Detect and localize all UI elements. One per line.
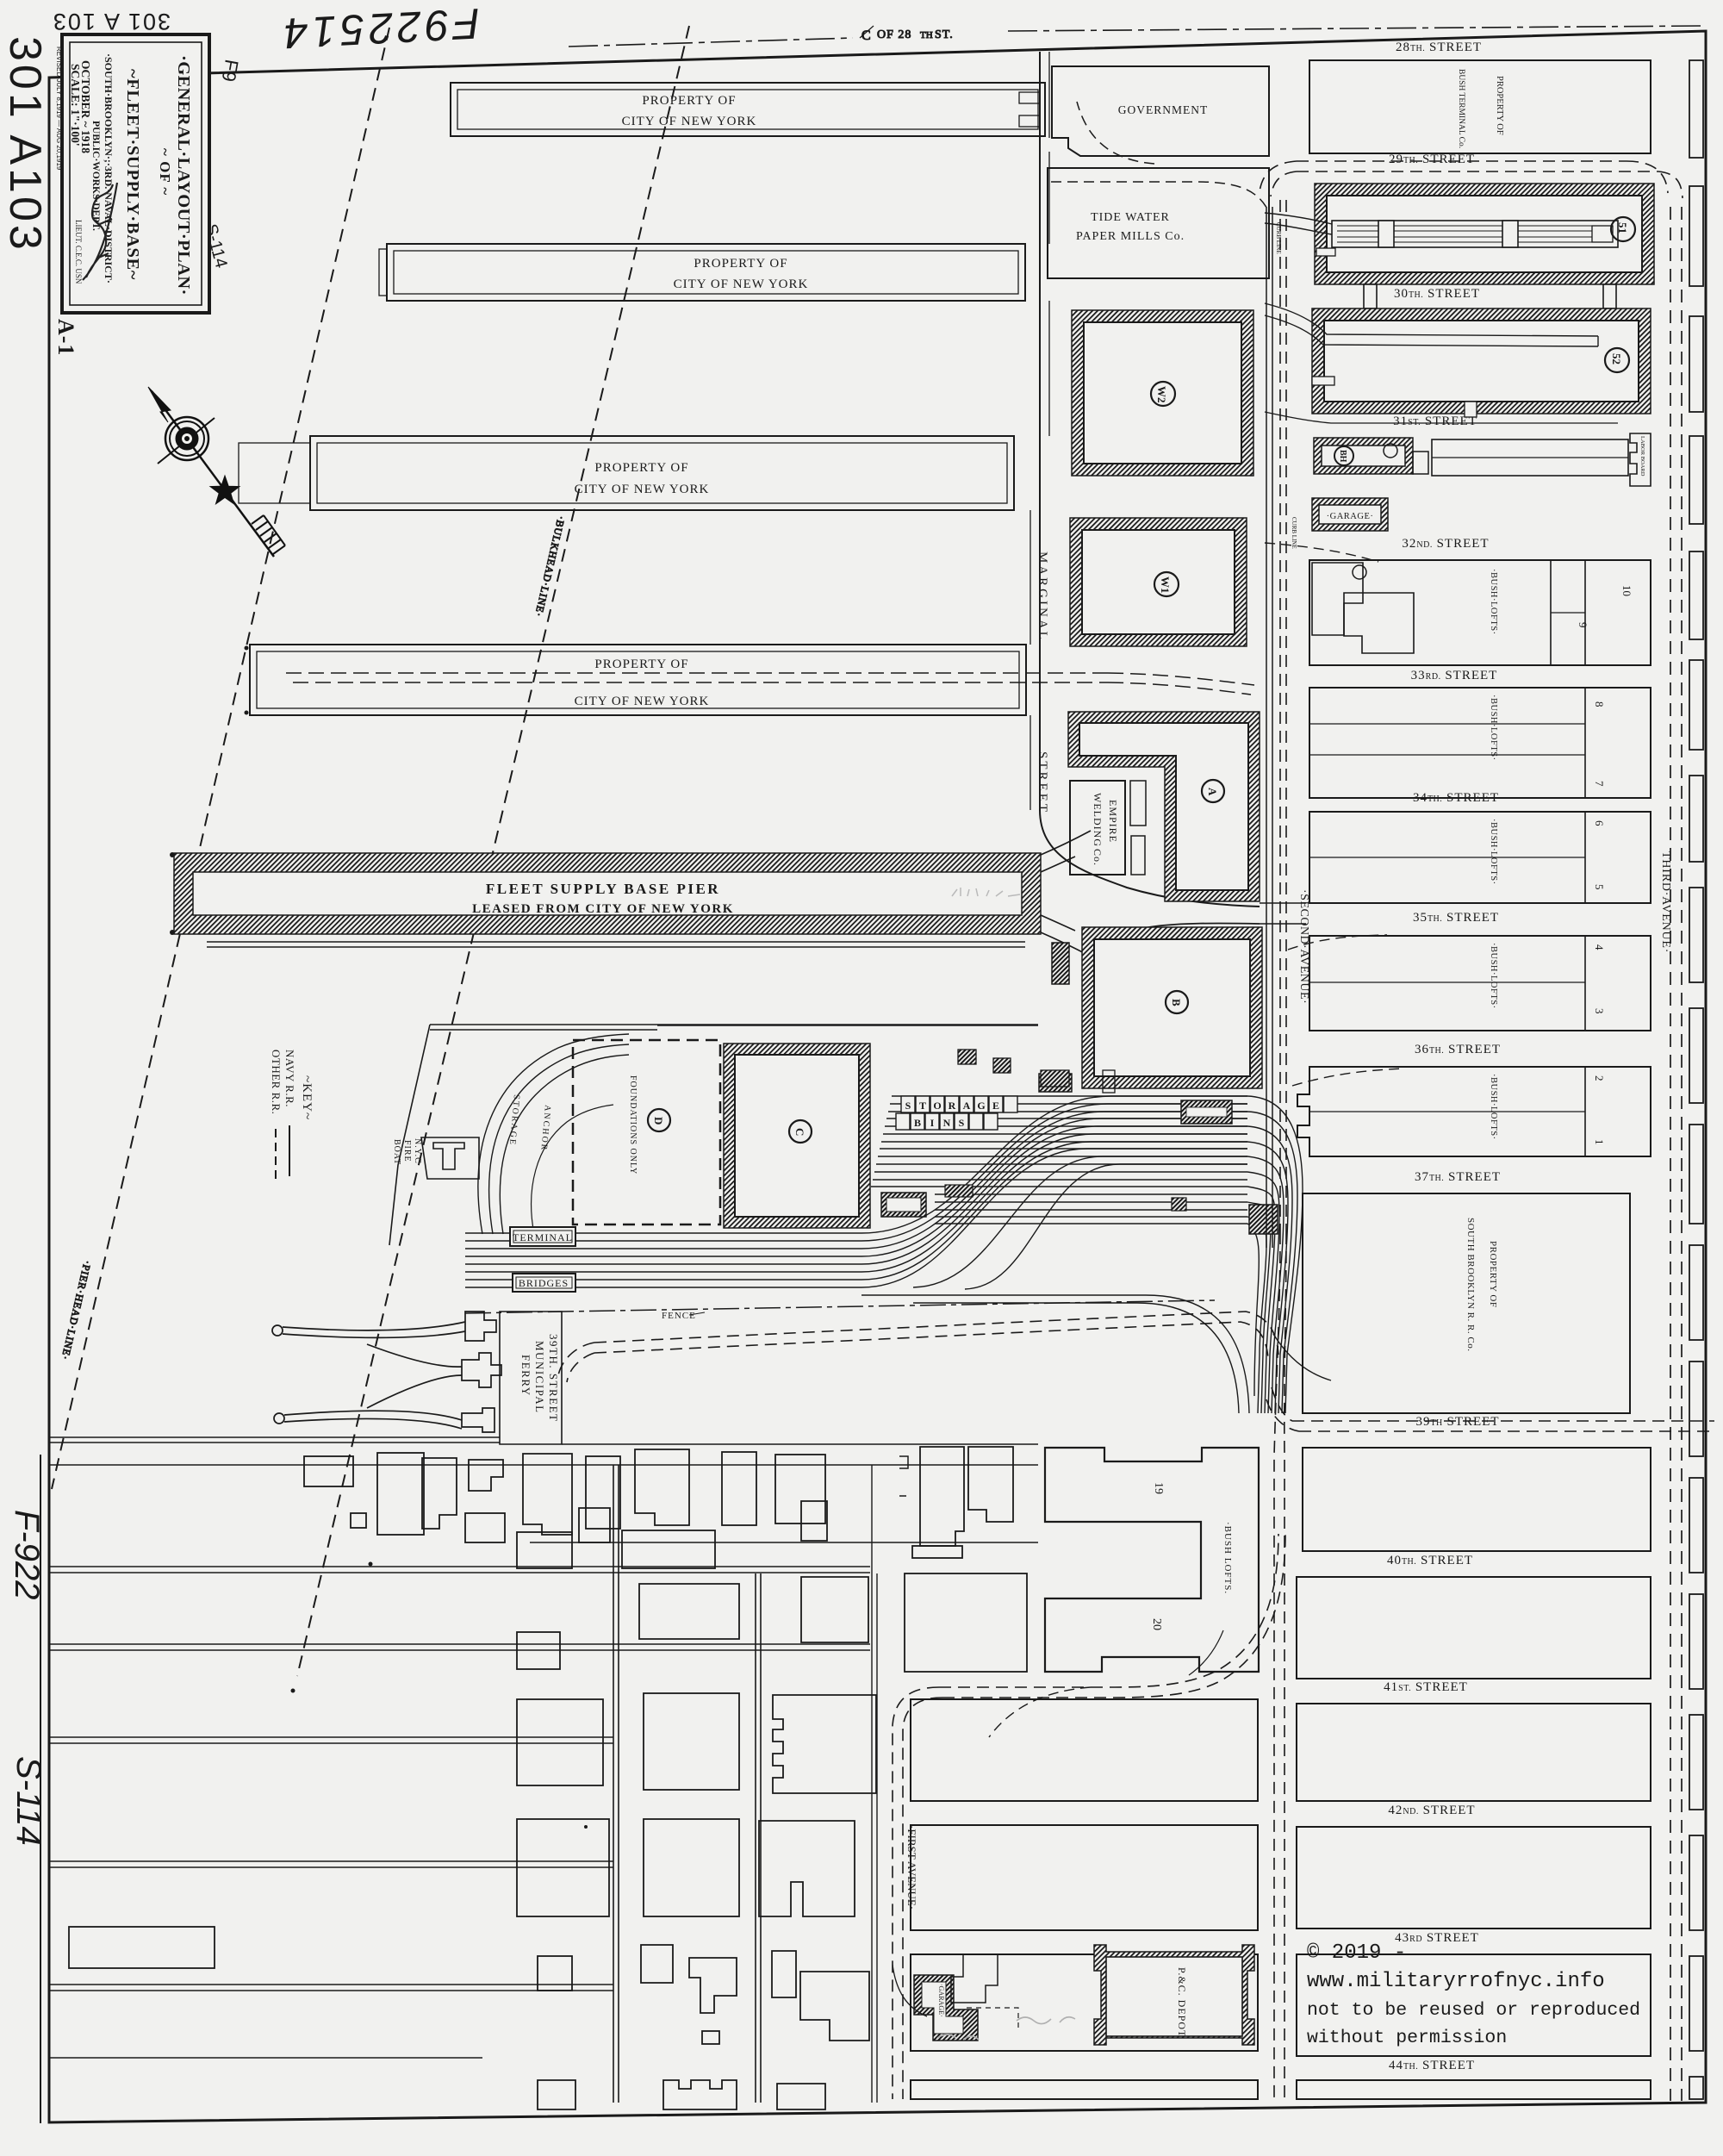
svg-text:~KEY~: ~KEY~ [300, 1075, 314, 1120]
svg-text:W2: W2 [1155, 386, 1168, 403]
svg-text:NAVY R.R.: NAVY R.R. [283, 1050, 296, 1107]
svg-text:PROPERTY OF: PROPERTY OF [1488, 1241, 1498, 1307]
svg-text:C: C [793, 1128, 806, 1136]
svg-text:3: 3 [1593, 1008, 1606, 1014]
svg-text:BOAT: BOAT [392, 1139, 401, 1165]
svg-text:·BUSH·LOFTS·: ·BUSH·LOFTS· [1489, 695, 1498, 761]
svg-text:MUNICIPAL: MUNICIPAL [533, 1341, 546, 1414]
svg-text:·BULKHEAD·LINE·: ·BULKHEAD·LINE· [532, 514, 568, 618]
svg-text:ANCHOR: ANCHOR [538, 1105, 552, 1152]
svg-text:·BUSH·LOFTS·: ·BUSH·LOFTS· [1489, 569, 1498, 635]
svg-text:33RD. STREET: 33RD. STREET [1411, 669, 1498, 682]
svg-text:PROPERTY OF: PROPERTY OF [594, 657, 688, 671]
svg-text:52: 52 [1610, 353, 1623, 365]
svg-text:CURB LINE: CURB LINE [1291, 517, 1297, 549]
svg-text:T: T [919, 1100, 926, 1112]
svg-text:STORAGE: STORAGE [507, 1094, 521, 1147]
svg-text:·SECOND·AVENUE·: ·SECOND·AVENUE· [1297, 889, 1310, 1004]
svg-text:~ OF ~: ~ OF ~ [157, 148, 173, 196]
svg-text:SOUTH BROOKLYN R. R. Cο.: SOUTH BROOKLYN R. R. Cο. [1465, 1218, 1476, 1351]
svg-text:1: 1 [1593, 1139, 1606, 1145]
svg-text:LABOR BOARD: LABOR BOARD [1639, 436, 1645, 477]
svg-text:PAPER MILLS Cο.: PAPER MILLS Cο. [1076, 230, 1185, 243]
svg-text:CITY OF NEW YORK: CITY OF NEW YORK [622, 115, 757, 128]
svg-text:without permission: without permission [1307, 2028, 1507, 2048]
svg-text:39TH. STREET: 39TH. STREET [547, 1334, 560, 1423]
svg-text:FENCE: FENCE [662, 1311, 696, 1321]
svg-text:PROPERTY OF: PROPERTY OF [594, 461, 688, 475]
svg-text:BUSH TERMINAL Cο.: BUSH TERMINAL Cο. [1457, 69, 1465, 148]
svg-text:301 A103: 301 A103 [0, 36, 50, 253]
svg-text:FLEET SUPPLY BASE PIER: FLEET SUPPLY BASE PIER [486, 881, 720, 897]
svg-text:www.militaryrrofnyc.info: www.militaryrrofnyc.info [1307, 1970, 1605, 1993]
svg-text:28TH. STREET: 28TH. STREET [1396, 41, 1482, 54]
svg-text:44TH. STREET: 44TH. STREET [1389, 2059, 1475, 2072]
svg-text:F922514: F922514 [278, 0, 481, 58]
svg-text:FOUNDATIONS ONLY: FOUNDATIONS ONLY [628, 1075, 638, 1175]
svg-text:36TH. STREET: 36TH. STREET [1415, 1043, 1501, 1056]
svg-text:8: 8 [1593, 701, 1606, 707]
svg-text:P.&C. DEPOT: P.&C. DEPOT [1176, 1967, 1188, 2037]
svg-text:A-1: A-1 [53, 319, 78, 356]
svg-text:Cο.: Cο. [1092, 849, 1104, 866]
svg-text:N.Y.C: N.Y.C [413, 1138, 422, 1164]
svg-text:9: 9 [1577, 622, 1589, 628]
svg-text:A: A [963, 1100, 971, 1112]
svg-text:20: 20 [1150, 1618, 1163, 1630]
svg-text:51: 51 [1616, 222, 1629, 234]
svg-text:6: 6 [1593, 820, 1606, 826]
svg-text:EMPIRE: EMPIRE [1107, 800, 1119, 843]
svg-text:GOVERNMENT: GOVERNMENT [1118, 103, 1209, 116]
svg-text:30TH. STREET: 30TH. STREET [1394, 287, 1480, 301]
svg-text:PROPERTY OF: PROPERTY OF [642, 94, 736, 108]
svg-text:PROPERTY OF: PROPERTY OF [1495, 76, 1504, 135]
svg-text:OTHER R.R.: OTHER R.R. [270, 1050, 283, 1114]
svg-text:301 A 103: 301 A 103 [52, 9, 171, 34]
svg-text:A: A [1206, 788, 1219, 796]
svg-text:F-922: F-922 [8, 1510, 46, 1600]
svg-text:·FIRST AVENUE·: ·FIRST AVENUE· [905, 1825, 918, 1910]
svg-text:CITY OF NEW YORK: CITY OF NEW YORK [674, 277, 809, 291]
svg-text:WELDING: WELDING [1092, 793, 1104, 847]
svg-text:40TH. STREET: 40TH. STREET [1387, 1554, 1473, 1567]
svg-text:·BUSH·LOFTS·: ·BUSH·LOFTS· [1489, 1074, 1498, 1140]
svg-text:7: 7 [1593, 781, 1606, 787]
svg-text:37TH. STREET: 37TH. STREET [1415, 1170, 1501, 1184]
svg-text:S-114: S-114 [9, 1756, 47, 1846]
svg-text:LIEUT. C.E.C. USN: LIEUT. C.E.C. USN [74, 220, 83, 284]
svg-text:SCALE: 1"·100': SCALE: 1"·100' [69, 64, 82, 146]
svg-text:OF 28: OF 28 [877, 28, 911, 41]
svg-text:5: 5 [1593, 884, 1606, 890]
svg-text:O: O [933, 1100, 941, 1112]
svg-text:CURB LINE: CURB LINE [1275, 222, 1282, 254]
svg-text:·GENERAL·LAYOUT·PLAN·: ·GENERAL·LAYOUT·PLAN· [174, 55, 193, 296]
svg-text:·BUSH·LOFTS·: ·BUSH·LOFTS· [1489, 943, 1498, 1009]
svg-text:43RD STREET: 43RD STREET [1395, 1931, 1479, 1945]
svg-text:CITY OF NEW YORK: CITY OF NEW YORK [575, 695, 710, 708]
svg-text:E: E [992, 1100, 999, 1112]
svg-text:B: B [914, 1117, 921, 1129]
svg-text:10: 10 [1620, 585, 1633, 596]
svg-text:not to be reused or reproduced: not to be reused or reproduced [1307, 2000, 1640, 2021]
svg-text:·BUSH LOFTS.: ·BUSH LOFTS. [1222, 1522, 1233, 1594]
svg-text:S: S [959, 1117, 965, 1129]
svg-text:THIRD·AVENUE·: THIRD·AVENUE· [1659, 851, 1672, 953]
svg-text:PROPERTY OF: PROPERTY OF [694, 257, 787, 271]
svg-text:F9: F9 [218, 58, 243, 84]
svg-text:~FLEET·SUPPLY·BASE~: ~FLEET·SUPPLY·BASE~ [123, 69, 142, 280]
svg-text:35TH. STREET: 35TH. STREET [1413, 911, 1499, 925]
svg-text:ST.: ST. [935, 28, 954, 41]
svg-text:R: R [949, 1100, 956, 1112]
svg-text:REVISED JULY 8,1919 — AUG 20,: REVISED JULY 8,1919 — AUG 20,1919 [55, 47, 63, 171]
svg-text:39TH STREET: 39TH STREET [1415, 1415, 1499, 1429]
svg-text:MARGINAL: MARGINAL [1036, 551, 1049, 642]
svg-text:G: G [977, 1100, 985, 1112]
svg-text:S: S [905, 1100, 911, 1112]
svg-text:·GARAGE·: ·GARAGE· [1327, 512, 1374, 521]
svg-text:·PIER·HEAD·LINE·: ·PIER·HEAD·LINE· [59, 1259, 93, 1362]
svg-text:BH: BH [1338, 450, 1347, 463]
svg-text:2: 2 [1593, 1075, 1606, 1081]
svg-text:STREET: STREET [1036, 751, 1049, 814]
svg-text:42ND. STREET: 42ND. STREET [1388, 1804, 1475, 1817]
svg-text:CITY OF NEW YORK: CITY OF NEW YORK [575, 483, 710, 496]
svg-text:© 2019 -: © 2019 - [1307, 1941, 1406, 1965]
svg-text:32ND. STREET: 32ND. STREET [1402, 537, 1489, 551]
svg-text:BRIDGES: BRIDGES [519, 1277, 569, 1289]
svg-text:FERRY: FERRY [519, 1355, 532, 1397]
svg-text:TH: TH [920, 30, 933, 41]
svg-text:TIDE WATER: TIDE WATER [1091, 211, 1170, 224]
svg-text:W1: W1 [1159, 576, 1172, 594]
svg-text:·BUSH·LOFTS·: ·BUSH·LOFTS· [1489, 819, 1498, 885]
svg-text:29TH. STREET: 29TH. STREET [1389, 153, 1475, 166]
svg-text:LEASED FROM CITY OF NEW Y: LEASED FROM CITY OF NEW YORK [472, 902, 734, 916]
svg-text:41ST. STREET: 41ST. STREET [1384, 1680, 1468, 1694]
svg-text:TERMINAL: TERMINAL [513, 1231, 573, 1243]
svg-text:B: B [1170, 999, 1183, 1006]
svg-text:N: N [943, 1117, 951, 1129]
svg-text:19: 19 [1152, 1482, 1165, 1494]
svg-text:D: D [652, 1117, 665, 1125]
svg-text:·GARAGE·: ·GARAGE· [937, 1984, 945, 2017]
svg-text:4: 4 [1593, 944, 1606, 950]
svg-text:FIRE: FIRE [402, 1140, 412, 1162]
svg-text:I: I [930, 1117, 935, 1129]
